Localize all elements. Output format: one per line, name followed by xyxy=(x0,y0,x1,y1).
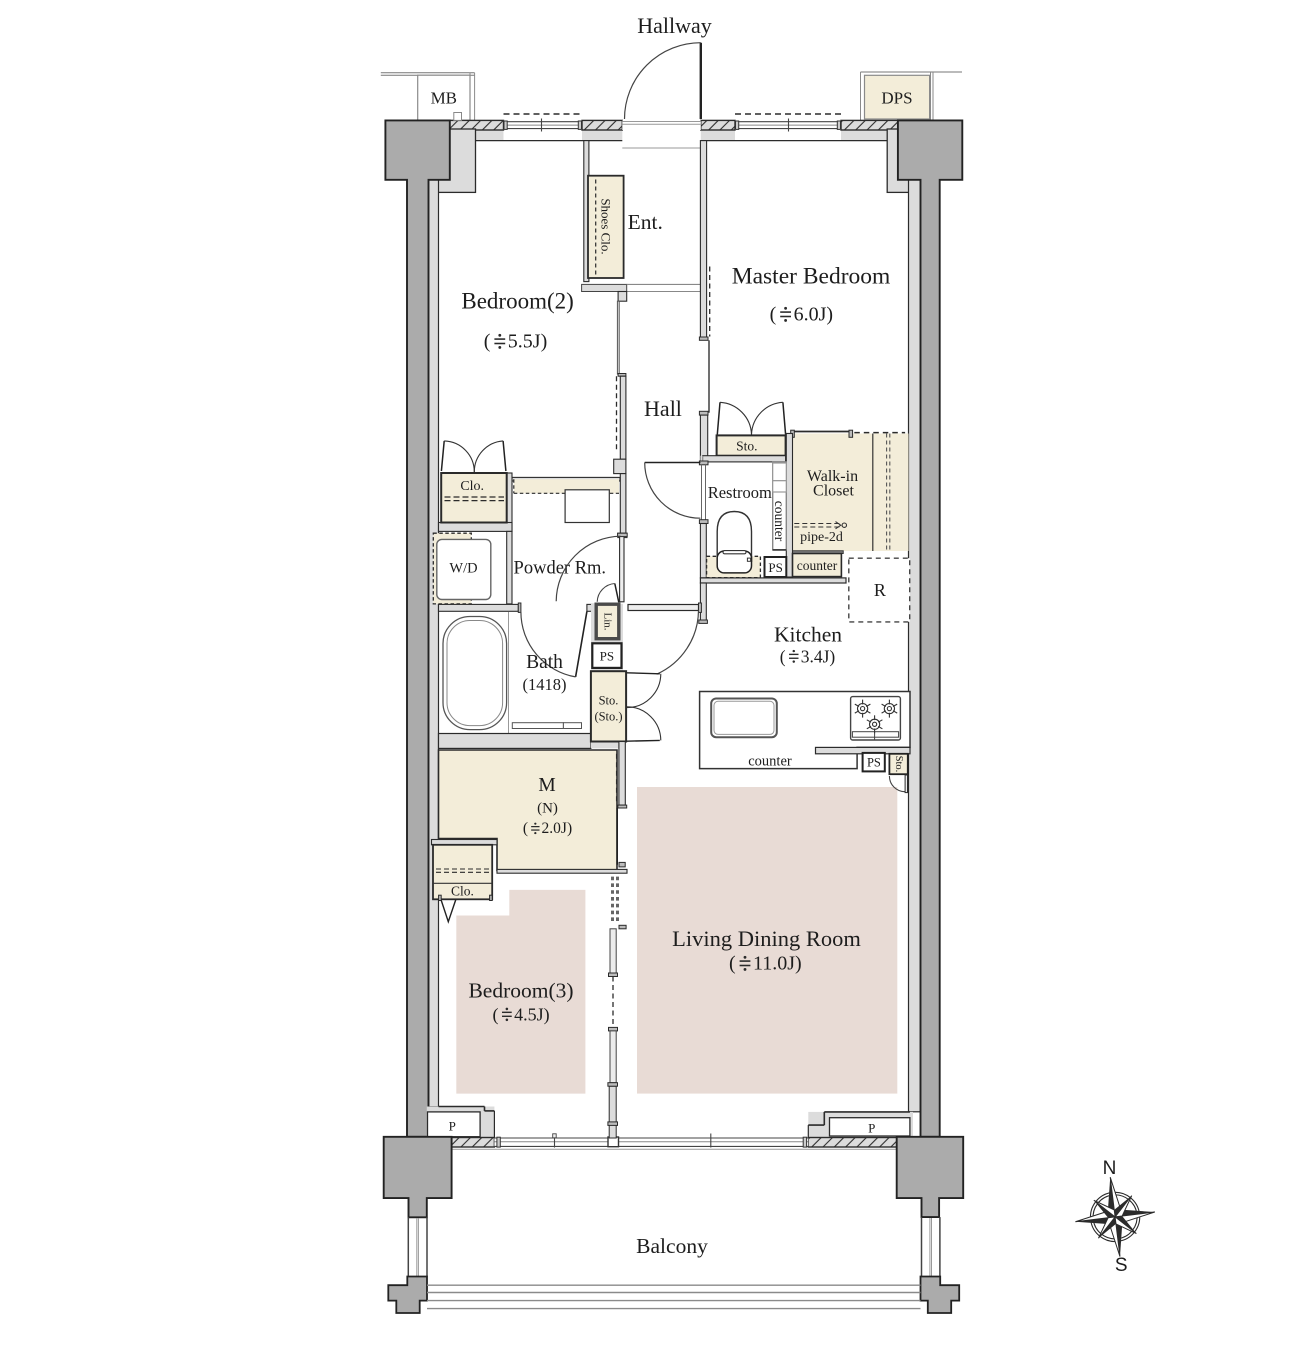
svg-text:4.5J): 4.5J) xyxy=(514,1005,550,1026)
svg-text:(: ( xyxy=(492,1005,498,1026)
svg-text:Kitchen: Kitchen xyxy=(774,623,842,647)
svg-text:Sto.: Sto. xyxy=(736,438,757,453)
svg-text:Ent.: Ent. xyxy=(628,210,663,234)
svg-text:PS: PS xyxy=(600,648,614,663)
svg-text:5.5J): 5.5J) xyxy=(508,331,547,353)
svg-text:(1418): (1418) xyxy=(523,675,567,694)
svg-text:Bedroom(3): Bedroom(3) xyxy=(468,979,573,1003)
svg-text:W/D: W/D xyxy=(449,561,477,577)
svg-text:(N): (N) xyxy=(537,801,558,817)
svg-text:counter: counter xyxy=(772,501,787,542)
svg-text:P: P xyxy=(868,1121,875,1136)
svg-text:Bedroom(2): Bedroom(2) xyxy=(461,289,573,314)
svg-text:S: S xyxy=(1115,1255,1128,1276)
svg-text:6.0J): 6.0J) xyxy=(794,304,833,326)
svg-text:PS: PS xyxy=(768,560,782,575)
svg-text:(: ( xyxy=(780,647,786,667)
svg-text:(: ( xyxy=(523,820,528,837)
svg-text:Master Bedroom: Master Bedroom xyxy=(732,264,891,290)
svg-text:Hall: Hall xyxy=(644,396,682,421)
svg-text:(Sto.): (Sto.) xyxy=(594,710,622,724)
svg-text:Sto.: Sto. xyxy=(599,694,619,708)
svg-text:3.4J): 3.4J) xyxy=(801,647,836,667)
svg-text:P: P xyxy=(449,1118,456,1133)
svg-text:R: R xyxy=(874,580,886,600)
svg-text:Living Dining Room: Living Dining Room xyxy=(672,926,861,951)
svg-text:2.0J): 2.0J) xyxy=(542,820,573,837)
svg-text:11.0J): 11.0J) xyxy=(753,953,802,975)
svg-text:pipe-2d: pipe-2d xyxy=(800,530,843,545)
svg-text:M: M xyxy=(538,775,555,796)
svg-text:N: N xyxy=(1103,1158,1117,1179)
svg-text:Closet: Closet xyxy=(813,483,854,500)
svg-text:Balcony: Balcony xyxy=(636,1234,708,1258)
svg-text:PS: PS xyxy=(867,756,881,770)
svg-text:MB: MB xyxy=(431,89,457,108)
svg-text:DPS: DPS xyxy=(881,89,912,108)
svg-text:Bath: Bath xyxy=(526,652,563,673)
svg-text:Clo.: Clo. xyxy=(460,479,484,494)
svg-text:Lin.: Lin. xyxy=(602,612,614,630)
svg-text:Powder Rm.: Powder Rm. xyxy=(514,559,607,579)
svg-text:counter: counter xyxy=(797,558,838,573)
svg-text:Sto.: Sto. xyxy=(893,756,904,773)
svg-text:Hallway: Hallway xyxy=(637,13,712,38)
svg-text:Restroom: Restroom xyxy=(708,483,772,502)
svg-text:(: ( xyxy=(484,331,491,353)
svg-text:Clo.: Clo. xyxy=(451,884,474,899)
svg-text:Shoes Clo.: Shoes Clo. xyxy=(598,198,613,254)
svg-text:(: ( xyxy=(729,953,736,975)
svg-text:(: ( xyxy=(770,304,777,326)
svg-text:counter: counter xyxy=(748,754,792,770)
